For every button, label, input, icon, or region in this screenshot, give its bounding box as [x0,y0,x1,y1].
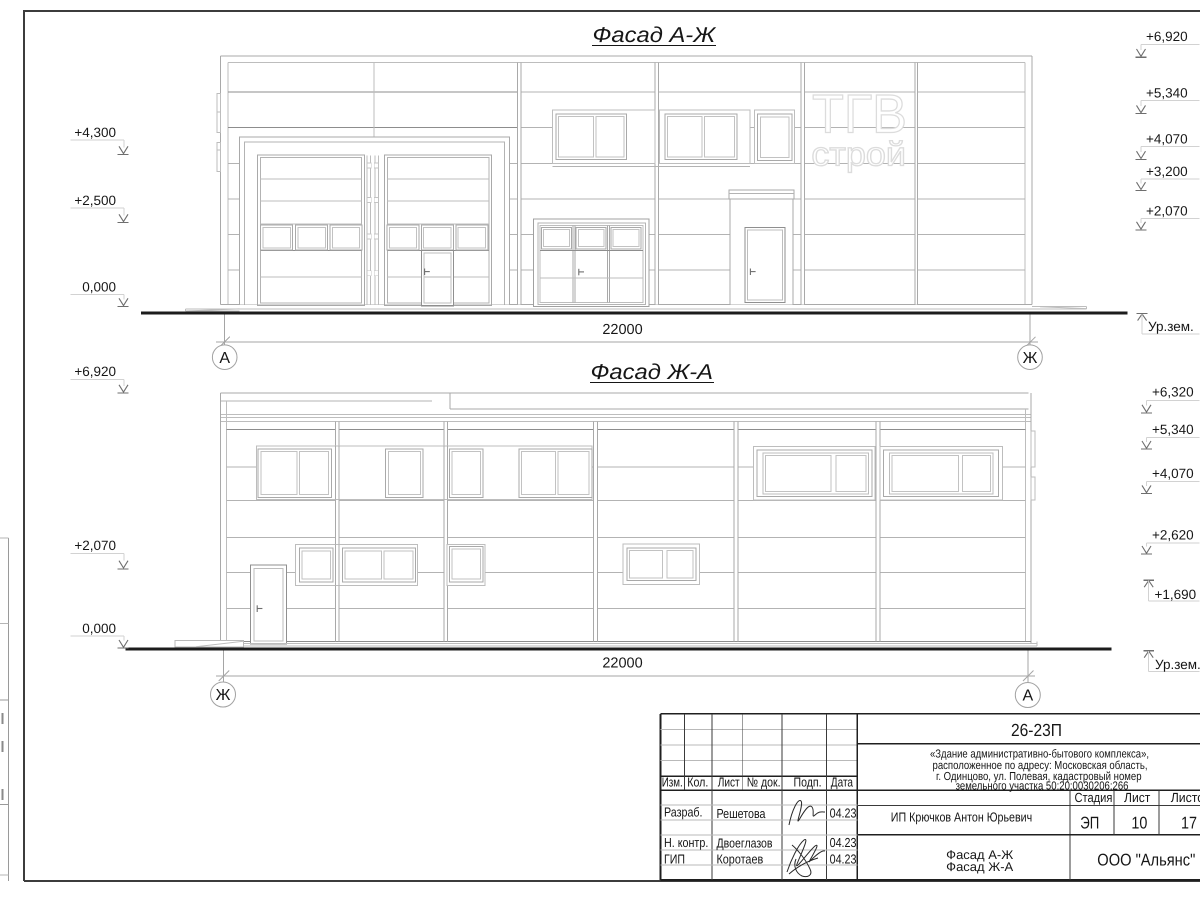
svg-text:Ур.зем.: Ур.зем. [1148,319,1194,334]
svg-text:+4,070: +4,070 [1146,132,1188,147]
svg-text:№ док.: № док. [747,774,781,789]
svg-text:+3,200: +3,200 [1146,164,1188,179]
svg-text:А: А [1022,688,1033,705]
svg-text:04.23: 04.23 [830,806,857,821]
svg-text:Стадия: Стадия [1075,790,1113,805]
svg-text:+2,070: +2,070 [74,538,116,553]
svg-text:+5,340: +5,340 [1146,86,1188,101]
svg-text:строй: строй [811,137,906,174]
svg-text:Дата: Дата [831,774,854,789]
svg-text:+2,500: +2,500 [74,193,116,208]
svg-text:А: А [219,350,230,367]
svg-text:17: 17 [1181,814,1197,833]
svg-text:22000: 22000 [602,656,642,672]
svg-text:10: 10 [1131,814,1147,833]
svg-text:+6,920: +6,920 [1146,29,1188,44]
svg-text:+5,340: +5,340 [1152,422,1194,437]
svg-text:0,000: 0,000 [82,621,116,636]
svg-text:+6,320: +6,320 [1152,385,1194,400]
svg-text:ИП Крючков Антон Юрьевич: ИП Крючков Антон Юрьевич [891,809,1032,824]
svg-text:ГИП: ГИП [664,852,685,867]
svg-text:ООО "Альянс": ООО "Альянс" [1097,851,1195,870]
svg-text:Фасад А-Ж: Фасад А-Ж [593,23,717,47]
svg-text:+4,070: +4,070 [1152,466,1194,481]
svg-text:Лист: Лист [1124,790,1150,805]
svg-text:Ур.зем.: Ур.зем. [1155,657,1200,672]
svg-text:+2,070: +2,070 [1146,203,1188,218]
svg-text:0,000: 0,000 [82,280,116,295]
svg-text:ЭП: ЭП [1080,814,1099,833]
svg-text:Подп.: Подп. [794,774,822,789]
svg-text:04.23: 04.23 [830,835,857,850]
svg-text:ТГВ: ТГВ [812,83,907,144]
svg-text:+4,300: +4,300 [74,125,116,140]
svg-text:+2,620: +2,620 [1152,528,1194,543]
svg-text:04.23: 04.23 [830,852,857,867]
svg-text:Фасад Ж-А: Фасад Ж-А [946,860,1014,874]
svg-text:Листов: Листов [1171,790,1200,805]
svg-text:+1,690: +1,690 [1155,587,1197,602]
svg-text:Лист: Лист [718,774,740,789]
svg-text:Ж: Ж [1023,350,1038,367]
svg-text:Двоеглазов: Двоеглазов [717,835,773,850]
svg-text:Изм.: Изм. [662,774,683,789]
svg-text:26-23П: 26-23П [1011,720,1062,740]
svg-text:Решетова: Решетова [717,806,767,821]
svg-text:22000: 22000 [602,322,642,338]
svg-text:Разраб.: Разраб. [664,805,703,820]
svg-text:Кол.: Кол. [687,774,708,789]
svg-text:Ж: Ж [216,687,231,704]
svg-text:Н. контр.: Н. контр. [664,835,708,850]
svg-text:+6,920: +6,920 [74,364,116,379]
svg-text:Фасад Ж-А: Фасад Ж-А [591,360,714,384]
svg-text:Коротаев: Коротаев [717,852,764,867]
